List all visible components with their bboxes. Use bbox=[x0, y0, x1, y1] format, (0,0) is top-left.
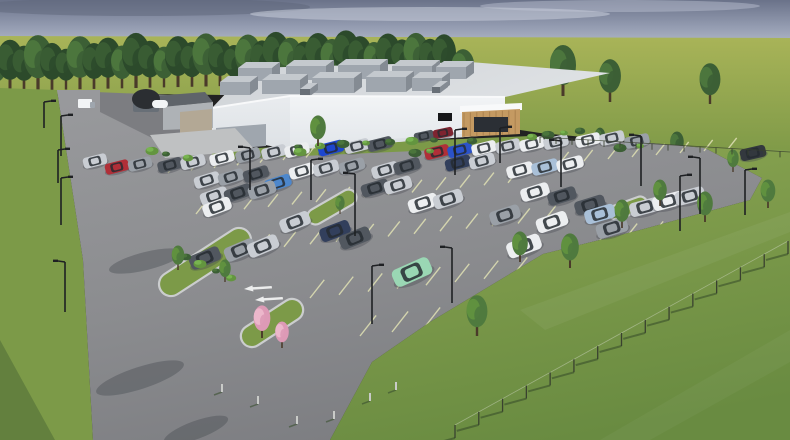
shrub bbox=[337, 140, 350, 148]
pole-arm bbox=[58, 149, 65, 150]
pole-arm bbox=[745, 169, 752, 170]
pole-arm bbox=[243, 147, 250, 148]
stake-post bbox=[395, 382, 397, 390]
rooftop-unit bbox=[366, 71, 414, 92]
shrub bbox=[362, 140, 370, 145]
tree-canopy-shade bbox=[766, 187, 774, 199]
shrub bbox=[212, 268, 220, 273]
shrub bbox=[575, 128, 586, 135]
shrub-highlight bbox=[406, 137, 413, 142]
shrub-highlight bbox=[362, 141, 366, 144]
shrub-highlight bbox=[409, 149, 416, 154]
pole-arm bbox=[445, 247, 452, 248]
rtu-top bbox=[262, 74, 308, 80]
shrub bbox=[315, 143, 326, 150]
stake-post bbox=[369, 393, 371, 401]
rtu-top bbox=[338, 59, 388, 65]
shrub bbox=[430, 137, 438, 142]
shrub-highlight bbox=[560, 131, 564, 134]
shrub-highlight bbox=[385, 139, 391, 143]
shrub-highlight bbox=[294, 145, 298, 148]
pole-arm bbox=[455, 129, 462, 130]
light-fixture bbox=[462, 128, 467, 130]
tree-canopy-shade bbox=[732, 156, 738, 166]
stake-post bbox=[257, 396, 259, 404]
shrub-highlight bbox=[194, 260, 201, 265]
light-fixture bbox=[379, 264, 384, 266]
tree-canopy-shade bbox=[707, 74, 718, 92]
box-truck bbox=[78, 99, 92, 108]
shrub bbox=[162, 151, 170, 156]
tree-canopy-shade bbox=[339, 201, 344, 209]
shrub-highlight bbox=[575, 128, 581, 132]
shrub bbox=[426, 148, 434, 153]
pole-arm bbox=[554, 140, 561, 141]
light-fixture bbox=[549, 139, 554, 141]
light-fixture bbox=[440, 246, 445, 248]
rtu-front bbox=[432, 87, 440, 93]
shrub-highlight bbox=[542, 131, 549, 136]
light-fixture bbox=[507, 126, 512, 128]
pole-arm bbox=[61, 115, 68, 116]
shrub-highlight bbox=[146, 147, 153, 152]
light-fixture bbox=[51, 100, 56, 102]
shrub-highlight bbox=[426, 149, 430, 152]
shrub bbox=[527, 134, 538, 141]
stake-post bbox=[221, 384, 223, 392]
light-fixture bbox=[629, 134, 634, 136]
shrub bbox=[183, 155, 194, 162]
shrub-highlight bbox=[294, 148, 301, 153]
rtu-front bbox=[262, 80, 300, 94]
light-fixture bbox=[752, 168, 757, 170]
rtu-front bbox=[312, 78, 354, 93]
rtu-top bbox=[392, 60, 440, 66]
rtu-top bbox=[286, 60, 334, 66]
shrub-highlight bbox=[467, 138, 473, 142]
pole-arm bbox=[311, 159, 318, 160]
tree-canopy-shade bbox=[260, 314, 269, 328]
light-fixture bbox=[687, 174, 692, 176]
pole-arm bbox=[680, 175, 687, 176]
tree-canopy-shade bbox=[280, 329, 287, 340]
shrub-highlight bbox=[183, 155, 189, 159]
entrance-glass bbox=[474, 117, 508, 132]
shrub bbox=[636, 143, 644, 148]
rooftop-unit bbox=[220, 76, 258, 95]
light-fixture bbox=[68, 176, 73, 178]
tree-canopy-shade bbox=[568, 243, 578, 258]
tree-canopy-shade bbox=[658, 187, 665, 198]
shrub bbox=[467, 138, 478, 145]
light-fixture bbox=[238, 146, 243, 148]
rtu-top bbox=[366, 71, 414, 77]
pole-arm bbox=[500, 127, 507, 128]
stake-post bbox=[333, 411, 335, 419]
pole-arm bbox=[693, 157, 700, 158]
pole-arm bbox=[634, 135, 641, 136]
architectural-rendering bbox=[0, 0, 790, 440]
tree-canopy-shade bbox=[474, 306, 485, 324]
shrub bbox=[194, 260, 207, 268]
shrub-highlight bbox=[162, 152, 166, 155]
stake-post bbox=[296, 416, 298, 424]
pole-arm bbox=[58, 261, 65, 262]
shrub bbox=[385, 139, 396, 146]
shrub bbox=[560, 130, 568, 135]
pole-arm bbox=[372, 265, 379, 266]
rtu-top bbox=[312, 72, 362, 78]
pole-arm bbox=[348, 173, 355, 174]
tree-canopy-shade bbox=[224, 266, 230, 276]
white-tank bbox=[152, 100, 168, 108]
light-fixture bbox=[65, 148, 70, 150]
shrub-highlight bbox=[337, 140, 344, 145]
shrub-highlight bbox=[212, 269, 216, 272]
shrub bbox=[406, 137, 419, 145]
shrub-highlight bbox=[527, 134, 533, 138]
building-sign bbox=[438, 113, 452, 121]
shrub bbox=[409, 149, 422, 157]
light-fixture bbox=[318, 158, 323, 160]
tree-canopy-shade bbox=[620, 207, 628, 219]
shrub bbox=[146, 147, 159, 155]
light-fixture bbox=[343, 172, 348, 174]
light-fixture bbox=[688, 156, 693, 158]
tree-canopy-shade bbox=[607, 71, 619, 89]
tree-canopy-shade bbox=[518, 240, 527, 253]
rtu-front bbox=[220, 82, 250, 95]
tree-canopy-shade bbox=[703, 200, 712, 213]
shrub bbox=[294, 148, 307, 156]
pole-arm bbox=[44, 101, 51, 102]
light-fixture bbox=[68, 114, 73, 116]
pole-arm bbox=[61, 177, 68, 178]
rooftop-unit bbox=[312, 72, 362, 93]
cloud bbox=[480, 0, 760, 12]
rtu-front bbox=[366, 77, 406, 92]
rtu-front bbox=[300, 89, 310, 96]
rendering-canvas bbox=[0, 0, 790, 440]
shrub-highlight bbox=[430, 138, 434, 141]
truck-cab bbox=[90, 102, 95, 108]
tree-canopy-shade bbox=[316, 124, 325, 137]
light-fixture bbox=[53, 260, 58, 262]
tree-canopy-shade bbox=[176, 252, 183, 263]
